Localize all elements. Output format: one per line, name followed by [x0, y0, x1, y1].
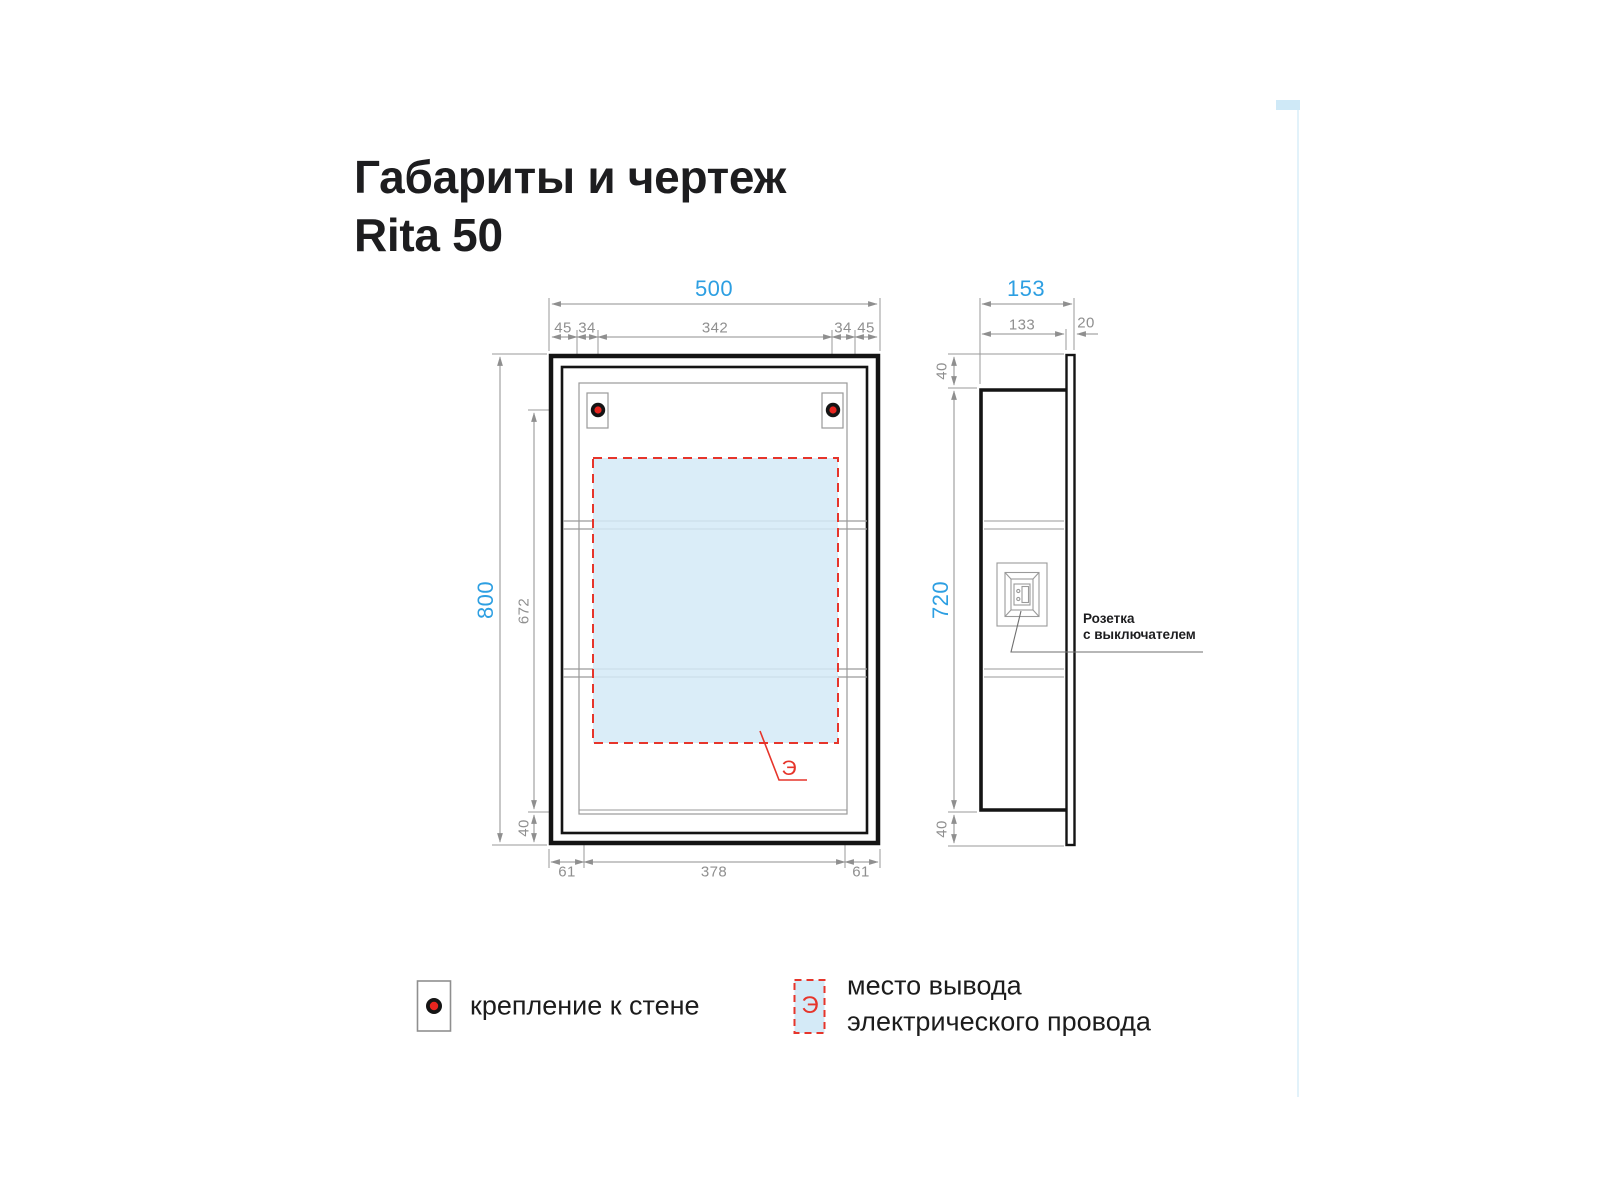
side-mirror-door [1067, 355, 1075, 845]
dim-front-top-seg-1: 45 [554, 320, 572, 337]
page-title-line2: Rita 50 [354, 206, 786, 264]
dim-front-bottom-seg-3: 61 [852, 864, 870, 881]
dim-front-height-total: 800 [473, 581, 499, 619]
dim-front-top-seg-2: 34 [578, 320, 596, 337]
dim-front-top-seg-3: 342 [702, 320, 728, 337]
dim-front-top-seg-4: 34 [834, 320, 852, 337]
legend-electric-label-line1: место вывода [847, 971, 1022, 1002]
dim-side-door-thickness: 20 [1077, 315, 1095, 332]
dim-side-bottom-margin: 40 [934, 820, 951, 838]
socket-label: Розетка с выключателем [1083, 611, 1196, 643]
dim-side-body-depth: 133 [1009, 317, 1035, 334]
dim-front-bottom-seg-1: 61 [558, 864, 576, 881]
drawing-page: Габариты и чертеж Rita 50 500 45 34 342 … [0, 0, 1600, 1200]
dim-front-bottom-offset: 40 [516, 819, 533, 837]
technical-drawing-canvas [0, 0, 1600, 1200]
socket-label-line2: с выключателем [1083, 627, 1196, 643]
dim-front-bottom-seg-2: 378 [701, 864, 727, 881]
side-cabinet [981, 355, 1075, 845]
dim-front-top-seg-5: 45 [857, 320, 875, 337]
dim-side-top-margin: 40 [934, 362, 951, 380]
legend-electric-label-line2: электрического провода [847, 1007, 1151, 1038]
side-body [981, 390, 1066, 810]
socket-label-line1: Розетка [1083, 611, 1196, 627]
legend-mount-label: крепление к стене [470, 991, 700, 1022]
electric-symbol-front: Э [781, 757, 796, 781]
dim-front-inner-height: 672 [516, 598, 533, 624]
side-view [948, 298, 1203, 846]
socket-with-switch [997, 563, 1047, 626]
legend-electric-symbol: Э [801, 992, 818, 1020]
front-view [492, 298, 880, 868]
page-title: Габариты и чертеж Rita 50 [354, 148, 786, 264]
dim-side-body-height: 720 [928, 581, 954, 619]
dim-front-width-total: 500 [695, 276, 733, 302]
front-electric-zone [593, 458, 838, 780]
dim-side-width-total: 153 [1007, 276, 1045, 302]
page-title-line1: Габариты и чертеж [354, 148, 786, 206]
page-edge-artifact [1276, 100, 1300, 1097]
